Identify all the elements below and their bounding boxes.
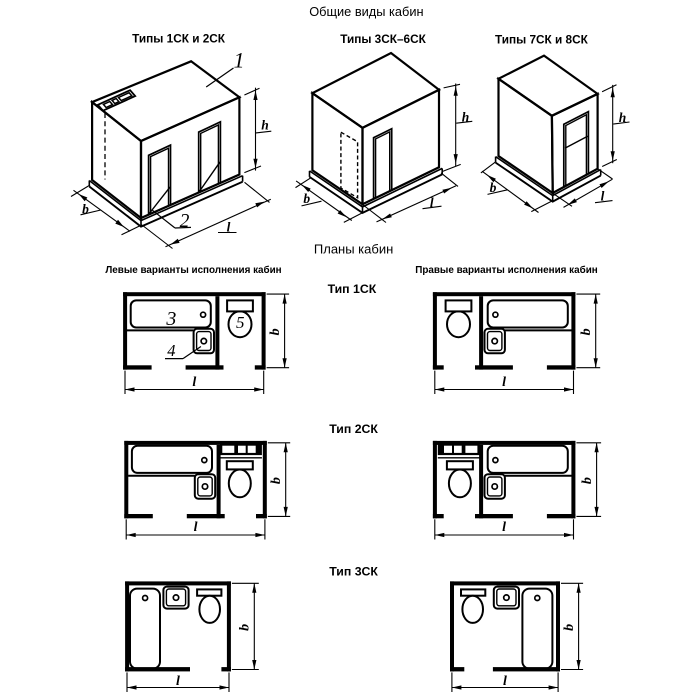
svg-text:Правые варианты исполнения каб: Правые варианты исполнения кабин [415, 265, 598, 276]
svg-text:Общие виды кабин: Общие виды кабин [309, 4, 423, 19]
svg-text:l: l [502, 375, 506, 390]
svg-text:5: 5 [236, 313, 245, 332]
svg-text:Тип 2СК: Тип 2СК [329, 422, 378, 436]
svg-text:Типы 1СК и 2СК: Типы 1СК и 2СК [132, 32, 226, 46]
svg-text:Типы 7СК и 8СК: Типы 7СК и 8СК [495, 32, 589, 46]
svg-text:4: 4 [167, 341, 175, 360]
svg-text:3: 3 [165, 308, 176, 330]
svg-text:b: b [579, 328, 594, 335]
svg-text:b: b [580, 477, 595, 484]
svg-text:l: l [192, 375, 196, 390]
svg-text:Левые варианты исполнения каби: Левые варианты исполнения кабин [105, 265, 281, 276]
svg-text:Типы 3СК–6СК: Типы 3СК–6СК [340, 32, 426, 46]
svg-text:b: b [82, 202, 89, 217]
svg-text:b: b [562, 624, 577, 631]
svg-text:h: h [462, 109, 470, 124]
svg-text:Тип 3СК: Тип 3СК [329, 565, 378, 579]
svg-text:h: h [261, 118, 269, 133]
svg-text:l: l [503, 674, 507, 689]
svg-text:Планы кабин: Планы кабин [314, 241, 393, 256]
svg-text:l: l [176, 674, 180, 689]
svg-text:Тип 1СК: Тип 1СК [328, 282, 377, 296]
svg-text:l: l [502, 520, 506, 535]
svg-text:b: b [269, 477, 284, 484]
svg-text:h: h [619, 110, 627, 125]
svg-text:b: b [268, 328, 283, 335]
svg-text:l: l [194, 520, 198, 535]
svg-text:b: b [238, 624, 253, 631]
svg-text:b: b [490, 180, 497, 195]
svg-text:l: l [601, 188, 605, 203]
svg-text:b: b [303, 191, 310, 206]
svg-text:l: l [227, 220, 231, 235]
svg-text:l: l [430, 195, 434, 210]
svg-text:2: 2 [180, 211, 190, 232]
svg-text:1: 1 [234, 48, 245, 73]
